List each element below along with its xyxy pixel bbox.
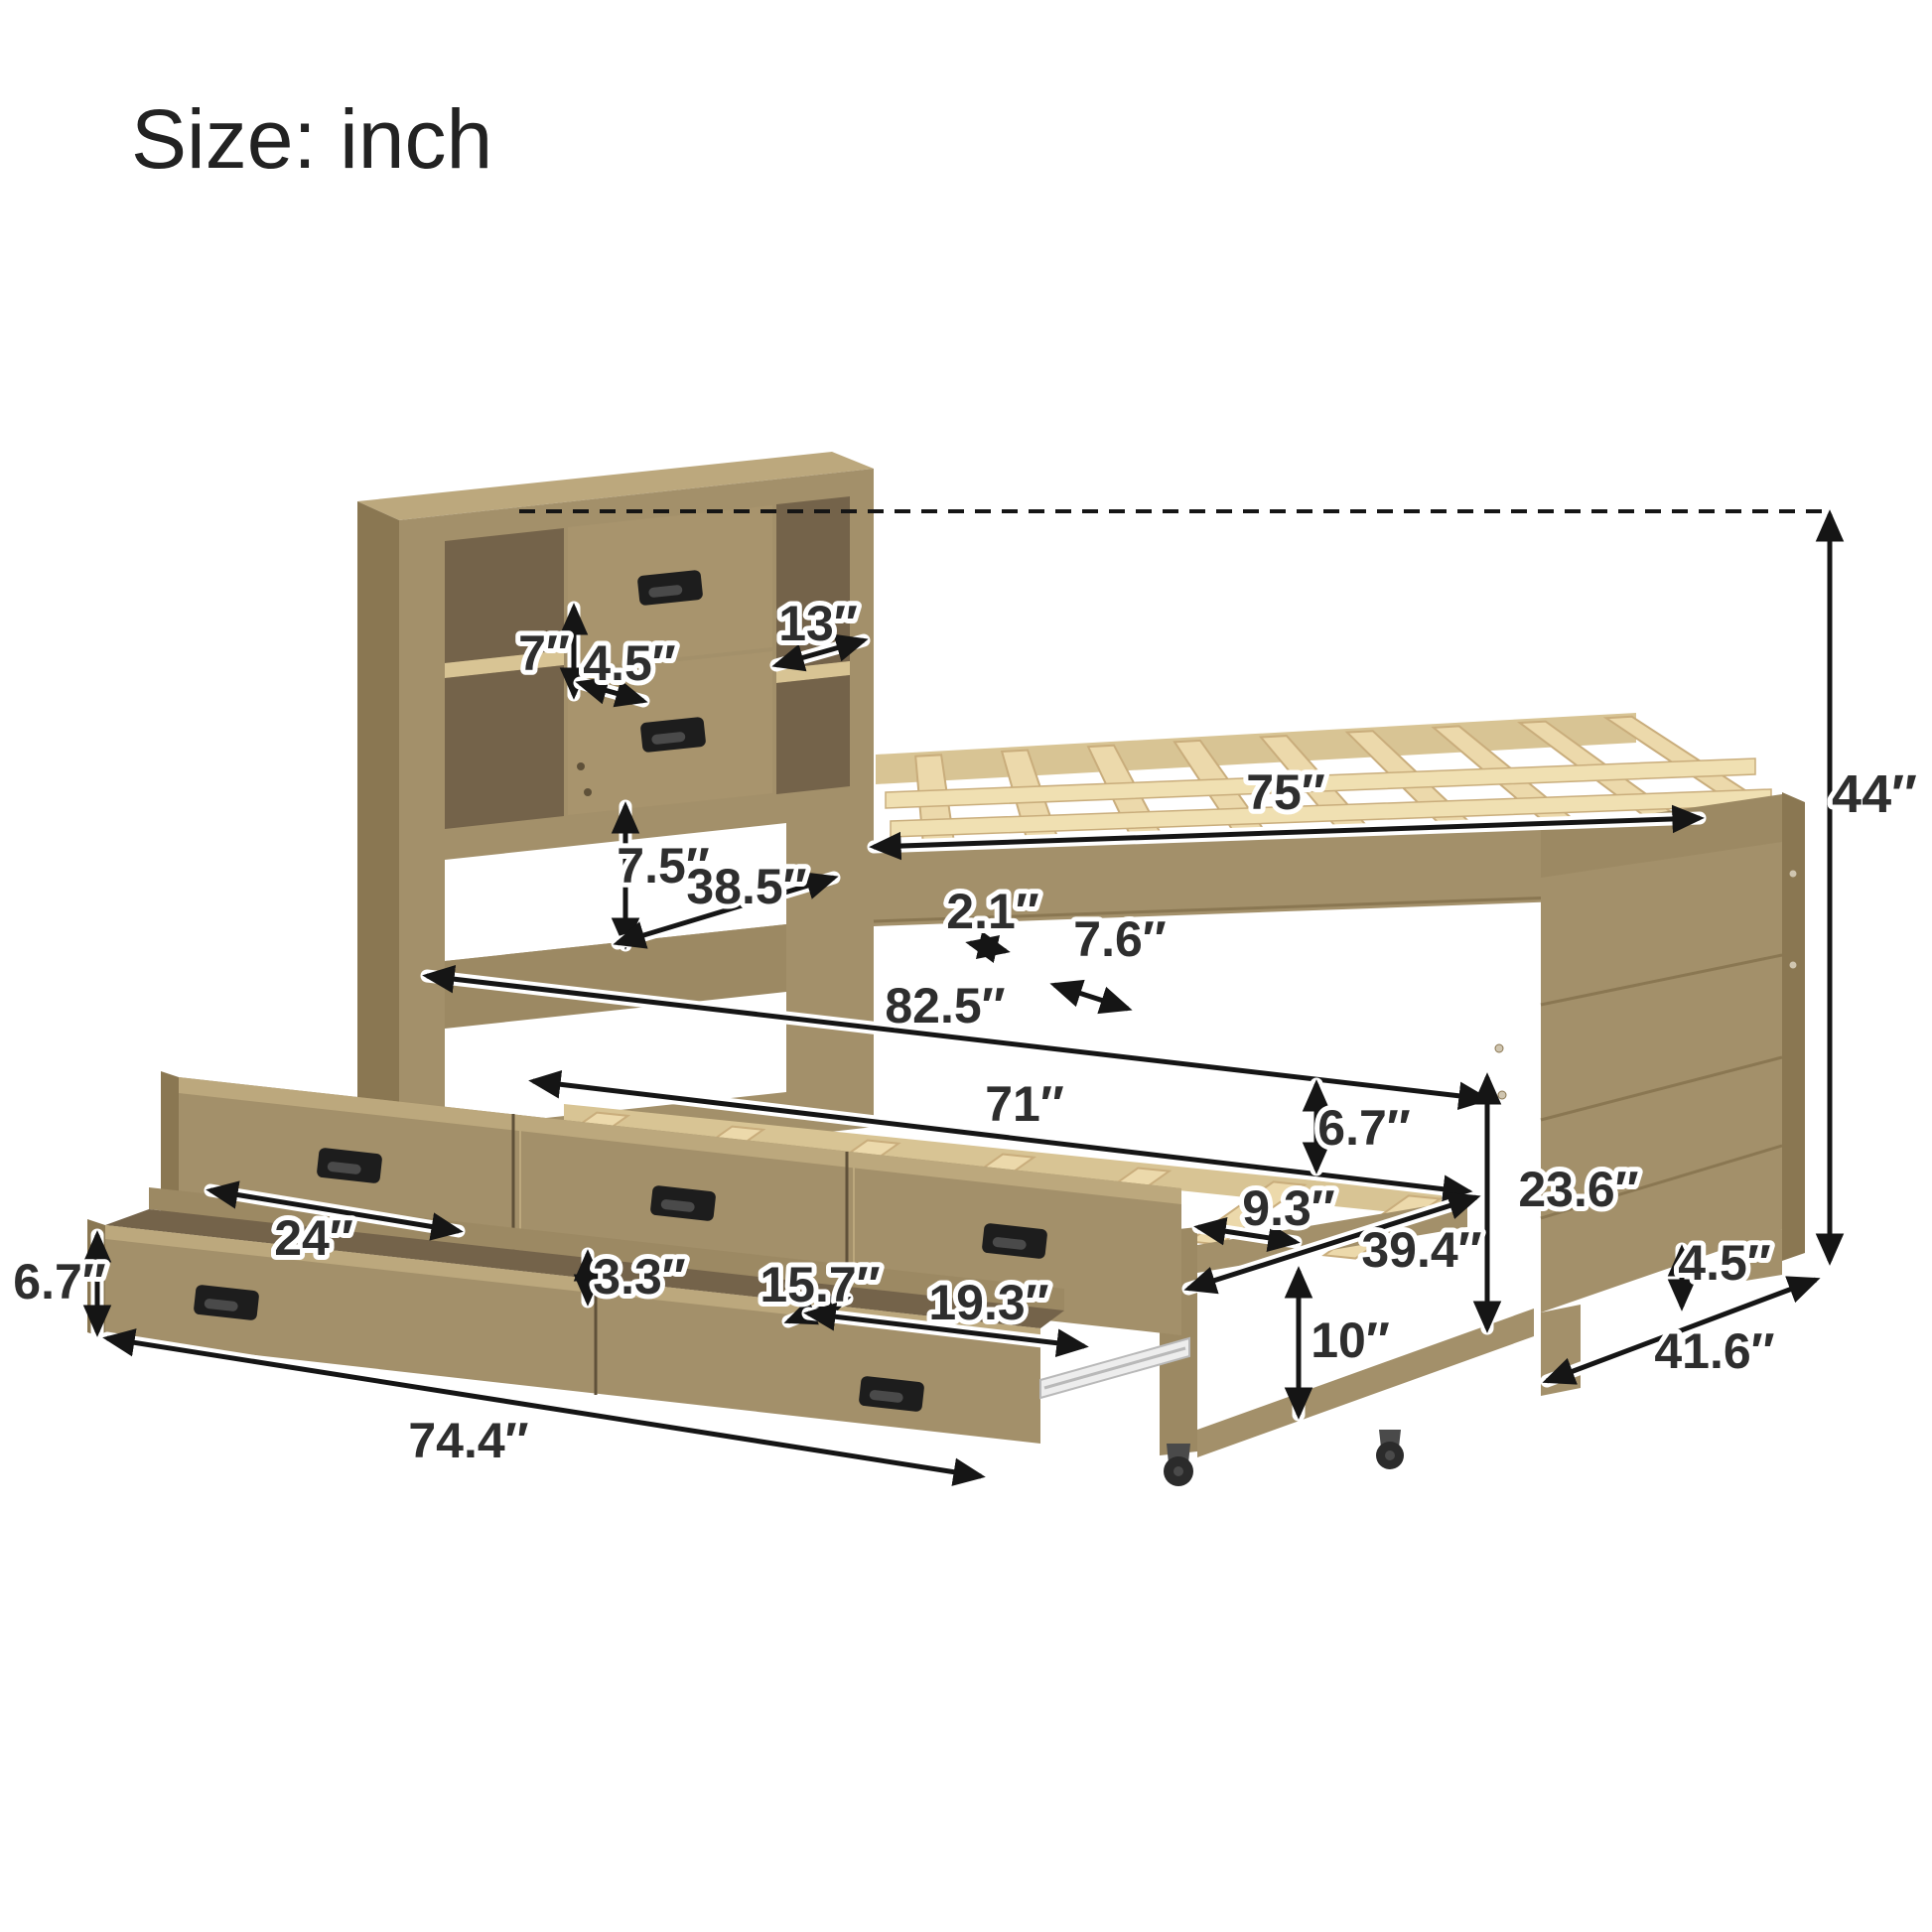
dimension-label: 15.7″ [759, 1257, 880, 1312]
headboard-cubby [776, 675, 850, 794]
dimension-2_1in: 2.1″ [946, 884, 1039, 951]
dimension-label: 13″ [778, 596, 858, 651]
dimension-6_7in: 6.7″ [1316, 1084, 1411, 1170]
screw [1789, 870, 1797, 878]
screw [1495, 1044, 1503, 1052]
dimension-7_6in: 7.6″ [1054, 911, 1167, 1009]
dimension-label: 75″ [1246, 764, 1325, 820]
dimension-label: 23.6″ [1518, 1162, 1638, 1217]
dimension-label: 2.1″ [946, 884, 1039, 939]
product-dimension-diagram: Size: inch [0, 0, 1932, 1932]
dimension-label: 4.5″ [583, 635, 676, 691]
shelf-pin-hole [584, 788, 592, 796]
dimension-label: 44″ [1832, 764, 1917, 824]
dimension-label: 39.4″ [1361, 1222, 1481, 1278]
screw [1498, 1091, 1506, 1099]
dimension-label: 10″ [1311, 1312, 1390, 1368]
dimension-arrow [1054, 985, 1128, 1009]
dimension-label: 74.4″ [408, 1413, 528, 1468]
dimension-3_3in: 3.3″ [588, 1249, 686, 1305]
headboard-cubby [445, 665, 564, 829]
dimension-label: 6.7″ [1317, 1100, 1411, 1156]
headboard-left-side [357, 501, 399, 1186]
dimension-label: 3.3″ [593, 1249, 686, 1305]
footboard-side-edge [1782, 792, 1805, 1261]
dimension-label: 19.3″ [928, 1275, 1048, 1330]
shelf-pin-hole [577, 762, 585, 770]
bookcase-headboard [357, 452, 874, 1186]
dimension-44in: 44″ [1830, 514, 1917, 1261]
bed-diagram-canvas: 7″4.5″13″7.5″38.5″75″2.1″7.6″44″82.5″71″… [0, 0, 1932, 1932]
dimension-label: 7.6″ [1073, 911, 1167, 967]
dimension-label: 71″ [985, 1076, 1064, 1132]
trundle-caster [1164, 1444, 1193, 1486]
dimension-label: 41.6″ [1654, 1323, 1774, 1379]
dimension-label: 24″ [274, 1210, 353, 1266]
dimension-label: 4.5″ [1678, 1235, 1771, 1291]
dimension-label: 9.3″ [1242, 1180, 1335, 1236]
dimension-6_7in: 6.7″ [13, 1235, 106, 1332]
dimension-label: 6.7″ [13, 1254, 106, 1310]
screw [1789, 961, 1797, 969]
dimension-label: 38.5″ [686, 859, 806, 914]
dimension-label: 7″ [518, 625, 570, 681]
trundle-caster [1376, 1430, 1404, 1469]
dimension-label: 82.5″ [885, 978, 1005, 1034]
